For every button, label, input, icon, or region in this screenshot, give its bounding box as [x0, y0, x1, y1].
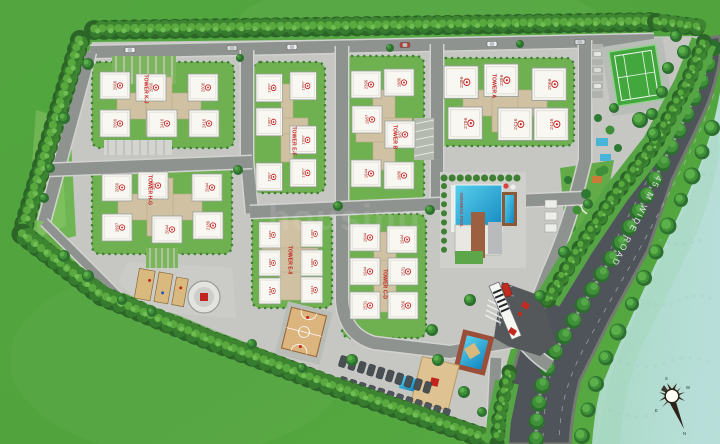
svg-text:2396: 2396 [459, 76, 465, 87]
svg-text:2416: 2416 [513, 118, 519, 129]
svg-text:TOWER E-F: TOWER E-F [291, 126, 297, 155]
svg-text:2044: 2044 [165, 224, 170, 234]
svg-text:TOWER E-II: TOWER E-II [287, 246, 293, 275]
svg-text:1531: 1531 [363, 300, 368, 310]
svg-text:TOWER C-D: TOWER C-D [382, 269, 388, 299]
svg-text:2044: 2044 [205, 182, 210, 192]
svg-text:1944: 1944 [363, 266, 368, 276]
svg-text:E: E [655, 408, 658, 413]
svg-text:1944: 1944 [364, 168, 369, 178]
svg-text:1944: 1944 [310, 285, 313, 294]
svg-text:2396: 2396 [364, 79, 369, 89]
svg-text:1987: 1987 [267, 116, 272, 126]
svg-text:2006: 2006 [201, 82, 206, 92]
svg-text:2416: 2416 [202, 118, 207, 128]
svg-text:1986: 1986 [268, 258, 271, 267]
svg-text:2416: 2416 [549, 118, 555, 129]
svg-text:1997: 1997 [301, 134, 306, 144]
svg-text:2066: 2066 [113, 80, 118, 90]
svg-text:1531: 1531 [401, 266, 406, 276]
svg-text:1987: 1987 [365, 114, 370, 124]
svg-text:N: N [683, 431, 686, 436]
svg-text:1997: 1997 [301, 80, 306, 90]
svg-text:2066: 2066 [547, 78, 553, 89]
svg-text:TOWER K-J: TOWER K-J [143, 74, 149, 103]
svg-text:housing: housing [268, 197, 422, 238]
svg-text:1997: 1997 [115, 222, 120, 232]
svg-text:1987: 1987 [267, 171, 272, 181]
svg-text:1997: 1997 [267, 82, 272, 92]
svg-text:1986: 1986 [310, 258, 313, 267]
svg-text:TOWER H-G: TOWER H-G [147, 175, 153, 205]
svg-text:1986: 1986 [397, 170, 402, 180]
svg-text:1366: 1366 [401, 300, 406, 310]
svg-text:1986: 1986 [397, 77, 402, 87]
svg-text:2416: 2416 [160, 118, 165, 128]
svg-text:2796: 2796 [463, 117, 469, 128]
svg-text:1967: 1967 [301, 167, 306, 177]
svg-text:S: S [665, 376, 668, 381]
svg-text:2066: 2066 [115, 182, 120, 192]
svg-text:1944: 1944 [268, 286, 271, 295]
svg-text:TOWER A: TOWER A [491, 74, 497, 98]
svg-text:2396: 2396 [499, 74, 505, 85]
svg-text:2066: 2066 [113, 118, 118, 128]
svg-text:SWIMMING POOL: SWIMMING POOL [459, 192, 464, 228]
svg-text:TOWER B: TOWER B [392, 125, 398, 150]
svg-text:W: W [686, 385, 690, 390]
svg-text:2186: 2186 [206, 220, 211, 230]
